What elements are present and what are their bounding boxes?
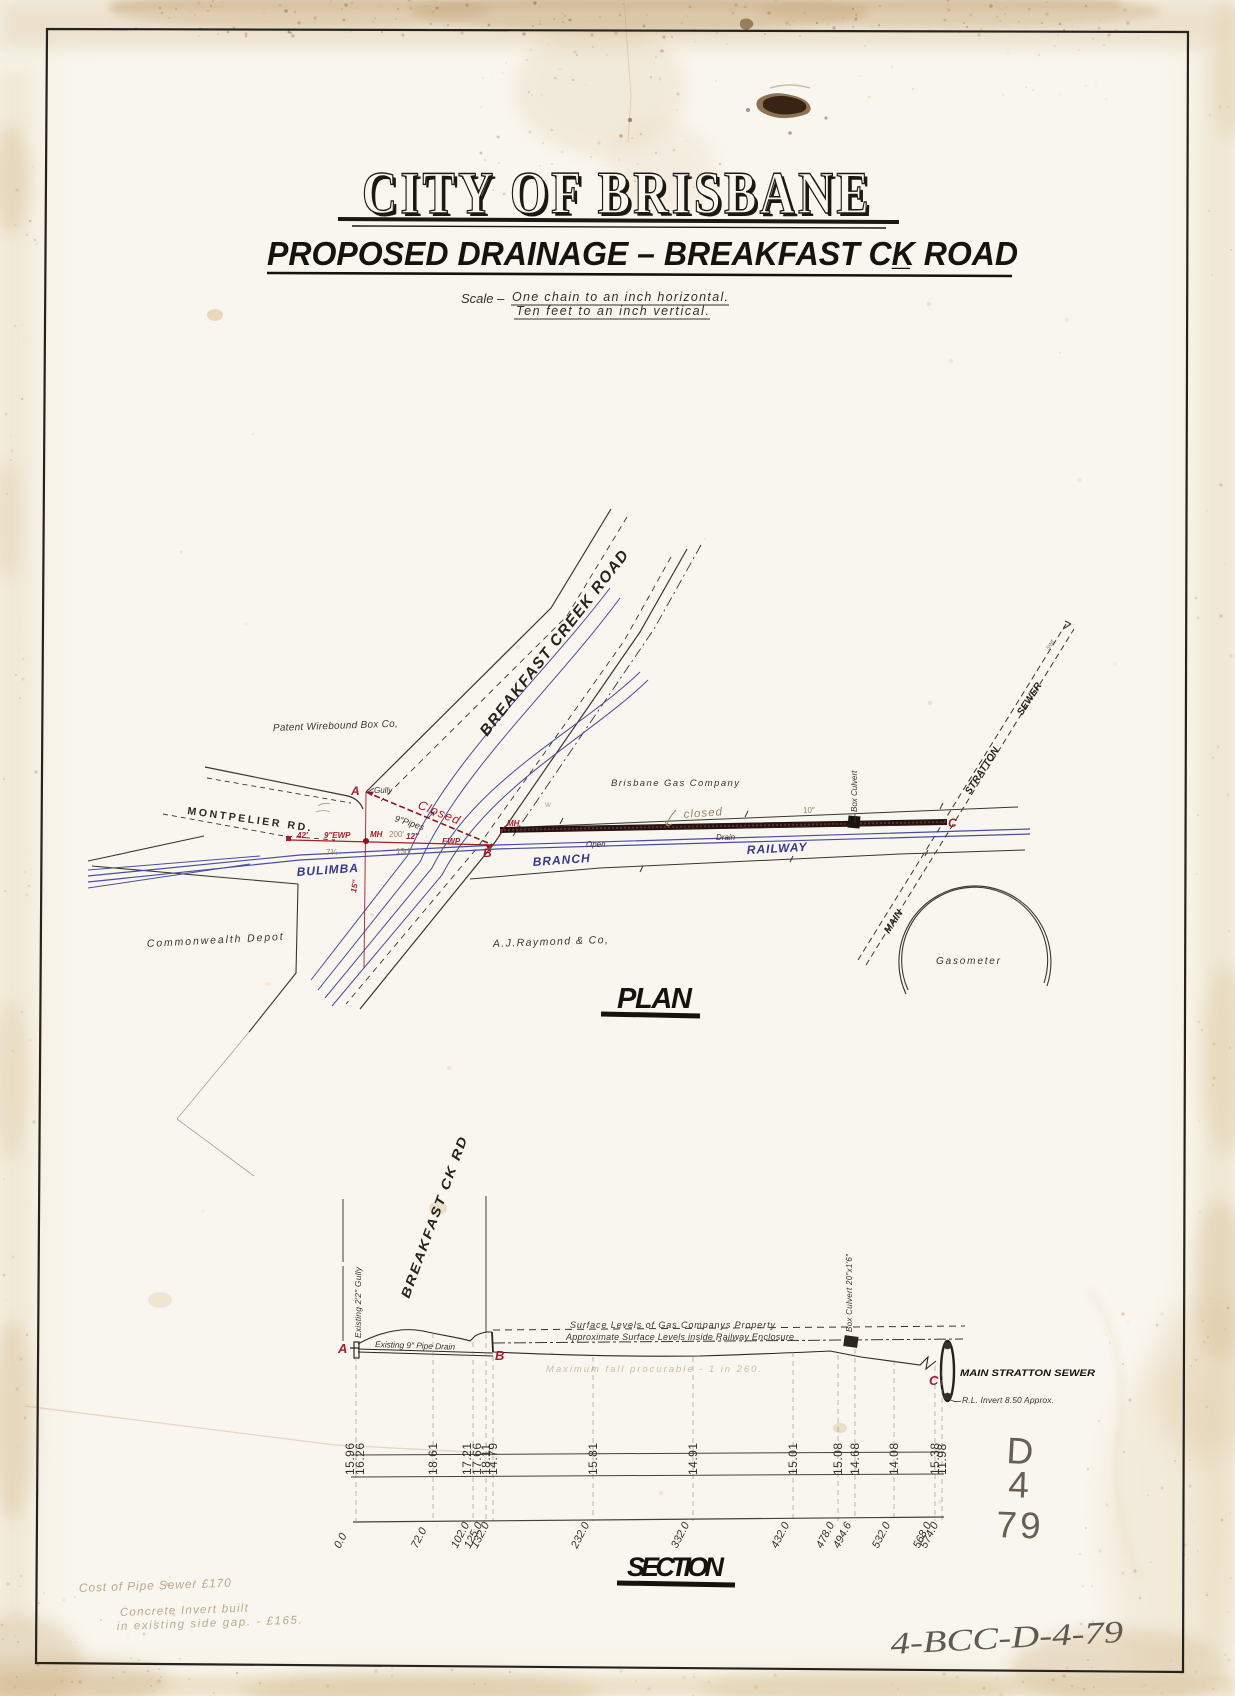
svg-text:Scale –: Scale – [461, 291, 505, 306]
svg-text:14.91: 14.91 [686, 1442, 700, 1475]
svg-text:Box Culvert: Box Culvert [850, 770, 859, 812]
svg-text:PLAN: PLAN [617, 983, 695, 1015]
svg-text:PROPOSED DRAINAGE – BREAKFAST: PROPOSED DRAINAGE – BREAKFAST CK̲ ROAD [267, 235, 1018, 272]
svg-text:9″EWP: 9″EWP [324, 831, 351, 840]
svg-text:A: A [337, 1341, 347, 1356]
svg-text:200′: 200′ [389, 830, 404, 839]
svg-text:15.01: 15.01 [786, 1442, 800, 1475]
svg-text:EWP: EWP [442, 837, 461, 846]
svg-text:Approximate Surface Levels: Approximate Surface Levels inside Railwa… [565, 1332, 794, 1342]
svg-text:18.61: 18.61 [426, 1442, 440, 1475]
svg-text:One chain to an inch horizonta: One chain to an inch horizontal. [512, 290, 728, 304]
svg-text:Maximum fall procurable -: Maximum fall procurable - 1 in 260. [546, 1364, 761, 1375]
svg-text:Existing 2′2″ Gully: Existing 2′2″ Gully [353, 1266, 363, 1338]
svg-text:16.26: 16.26 [353, 1442, 367, 1475]
svg-text:R.L. Invert 8.50 Approx.: R.L. Invert 8.50 Approx. [962, 1395, 1054, 1405]
svg-text:Open: Open [586, 840, 606, 849]
svg-text:14.08: 14.08 [887, 1442, 901, 1475]
svg-text:SECTION: SECTION [627, 1552, 726, 1582]
svg-text:C: C [948, 816, 957, 830]
svg-text:MAIN STRATTON SEWER: MAIN STRATTON SEWER [960, 1368, 1095, 1379]
svg-text:14.79: 14.79 [486, 1442, 500, 1475]
svg-text:12″: 12″ [406, 832, 420, 841]
svg-text:C: C [929, 1373, 939, 1388]
svg-text:Gasometer: Gasometer [936, 956, 1001, 967]
svg-text:Drain: Drain [716, 833, 736, 842]
svg-text:Surface Levels of Gas Comp: Surface Levels of Gas Companys Property [570, 1320, 776, 1330]
svg-text:A: A [350, 784, 360, 798]
svg-text:Brisbane Gas Company: Brisbane Gas Company [611, 778, 740, 789]
svg-text:15.08: 15.08 [831, 1442, 845, 1475]
svg-text:Box Culvert 20″x1′6″: Box Culvert 20″x1′6″ [845, 1253, 854, 1332]
svg-text:MH: MH [507, 819, 520, 828]
svg-text:MH: MH [370, 830, 383, 839]
svg-text:B: B [495, 1348, 504, 1363]
svg-text:Gully: Gully [374, 786, 393, 795]
svg-text:4: 4 [1008, 1464, 1030, 1506]
svg-text:11.98: 11.98 [935, 1443, 949, 1475]
svg-text:14.68: 14.68 [848, 1442, 862, 1475]
svg-text:10″: 10″ [803, 806, 815, 815]
svg-text:CITY OF BRISBANE: CITY OF BRISBANE [362, 160, 872, 226]
svg-text:w: w [544, 800, 551, 809]
svg-text:B: B [483, 846, 492, 860]
svg-text:15.81: 15.81 [586, 1442, 600, 1475]
svg-text:7¾: 7¾ [326, 848, 337, 857]
svg-text:79: 79 [996, 1504, 1045, 1547]
svg-text:13d: 13d [396, 847, 409, 856]
